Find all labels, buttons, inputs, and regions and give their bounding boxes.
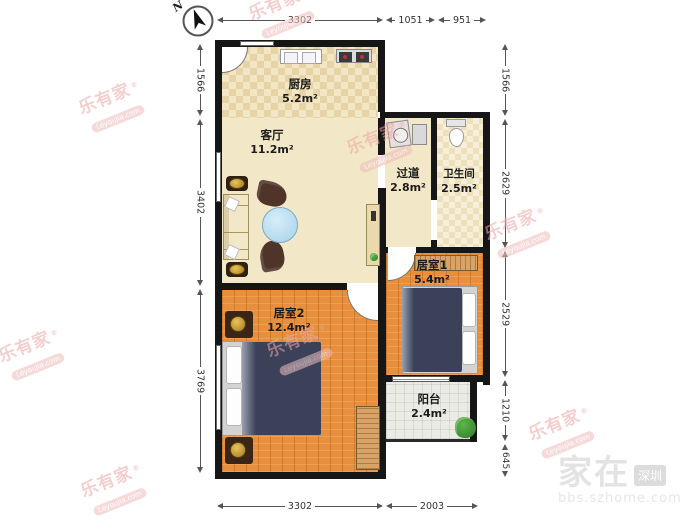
room-area: 2.8m²	[384, 181, 432, 195]
nightstand	[225, 437, 253, 464]
room-label-bedroom2: 居室2 12.4m²	[244, 306, 334, 335]
room-area: 2.5m²	[433, 182, 485, 196]
cabinet	[366, 204, 380, 266]
room-name: 居室2	[244, 306, 334, 321]
wall	[378, 118, 385, 155]
toilet-tank	[446, 119, 466, 127]
window	[216, 345, 221, 430]
balcony-railing	[386, 439, 470, 442]
window	[216, 152, 221, 202]
burner-icon	[339, 52, 352, 62]
balcony-sliding-door	[392, 376, 450, 382]
pillow	[462, 293, 476, 327]
wall	[378, 47, 385, 112]
floor-plan: 厨房 5.2m² 客厅 11.2m² 过道 2.8m² 卫生间 2.5m² 居室…	[0, 0, 700, 525]
wall	[380, 247, 388, 253]
cabinet-handle	[371, 211, 376, 221]
room-name: 卫生间	[433, 168, 485, 182]
north-arrow-icon	[181, 4, 215, 38]
window	[240, 41, 274, 46]
room-name: 居室1	[387, 258, 477, 273]
wall	[431, 240, 437, 247]
dimension-top-2: 1051	[386, 14, 435, 26]
pillow	[226, 346, 242, 384]
north-compass: N	[181, 4, 215, 42]
ottoman	[226, 176, 248, 191]
ottoman-cushion	[229, 264, 245, 275]
dimension-bottom-1: 3302	[217, 500, 383, 512]
kitchen-sink	[280, 49, 322, 64]
szhome-watermark: 家在 深圳 bbs.szhome.com	[558, 456, 682, 506]
wall	[222, 283, 347, 290]
room-name: 过道	[384, 166, 432, 181]
brand-watermark: 乐有家® Leyoujia.com	[480, 198, 556, 263]
brand-watermark: 乐有家® Leyoujia.com	[0, 320, 70, 385]
room-name: 厨房	[255, 77, 345, 92]
wardrobe	[356, 406, 380, 470]
wall	[416, 247, 490, 253]
dimension-left-3: 3769	[193, 289, 207, 473]
wall	[215, 472, 386, 479]
dimension-top-1: 3302	[217, 14, 383, 26]
lamp-icon	[230, 442, 246, 458]
brand-watermark: 乐有家® Leyoujia.com	[524, 398, 600, 463]
pillow	[226, 388, 242, 426]
dimension-top-3: 951	[438, 14, 486, 26]
room-name: 客厅	[227, 128, 317, 143]
pillow	[462, 331, 476, 365]
burner-icon	[356, 52, 369, 62]
dimension-left-2: 3402	[193, 119, 207, 286]
szhome-watermark-url: bbs.szhome.com	[558, 491, 682, 506]
room-label-living: 客厅 11.2m²	[227, 128, 317, 157]
plant	[455, 417, 476, 438]
room-area: 2.4m²	[404, 407, 454, 421]
dimension-right-4: 1210	[498, 380, 512, 441]
dimension-right-2: 2629	[498, 119, 512, 248]
coffee-table	[262, 207, 298, 243]
sink-basin-icon	[302, 52, 316, 64]
room-area: 12.4m²	[244, 321, 334, 335]
room-area: 5.2m²	[255, 92, 345, 106]
room-label-balcony: 阳台 2.4m²	[404, 392, 454, 421]
room-area: 11.2m²	[227, 143, 317, 157]
room-label-bedroom1: 居室1 5.4m²	[387, 258, 477, 287]
stove	[336, 49, 372, 63]
brand-watermark: 乐有家® Leyoujia.com	[74, 72, 150, 137]
room-name: 阳台	[404, 392, 454, 407]
small-plant-icon	[370, 253, 378, 261]
brand-watermark: 乐有家® Leyoujia.com	[76, 455, 152, 520]
ottoman	[226, 262, 248, 277]
washing-machine	[386, 120, 411, 149]
blanket-fold	[402, 288, 414, 372]
blanket-fold	[242, 342, 256, 435]
side-table	[412, 124, 427, 145]
dimension-left-1: 1566	[193, 44, 207, 116]
dimension-bottom-2: 2003	[386, 500, 478, 512]
room-label-hallway: 过道 2.8m²	[384, 166, 432, 195]
szhome-watermark-text: 家在	[558, 456, 630, 490]
room-area: 5.4m²	[387, 273, 477, 287]
washer-drum-icon	[392, 127, 409, 144]
sink-basin-icon	[284, 52, 298, 64]
dimension-right-3: 2529	[498, 251, 512, 377]
room-label-bathroom: 卫生间 2.5m²	[433, 168, 485, 196]
dimension-right-1: 1566	[498, 44, 512, 116]
szhome-watermark-badge: 深圳	[634, 465, 666, 486]
ottoman-cushion	[229, 178, 245, 189]
dimension-right-5: 645	[498, 444, 512, 477]
room-label-kitchen: 厨房 5.2m²	[255, 77, 345, 106]
